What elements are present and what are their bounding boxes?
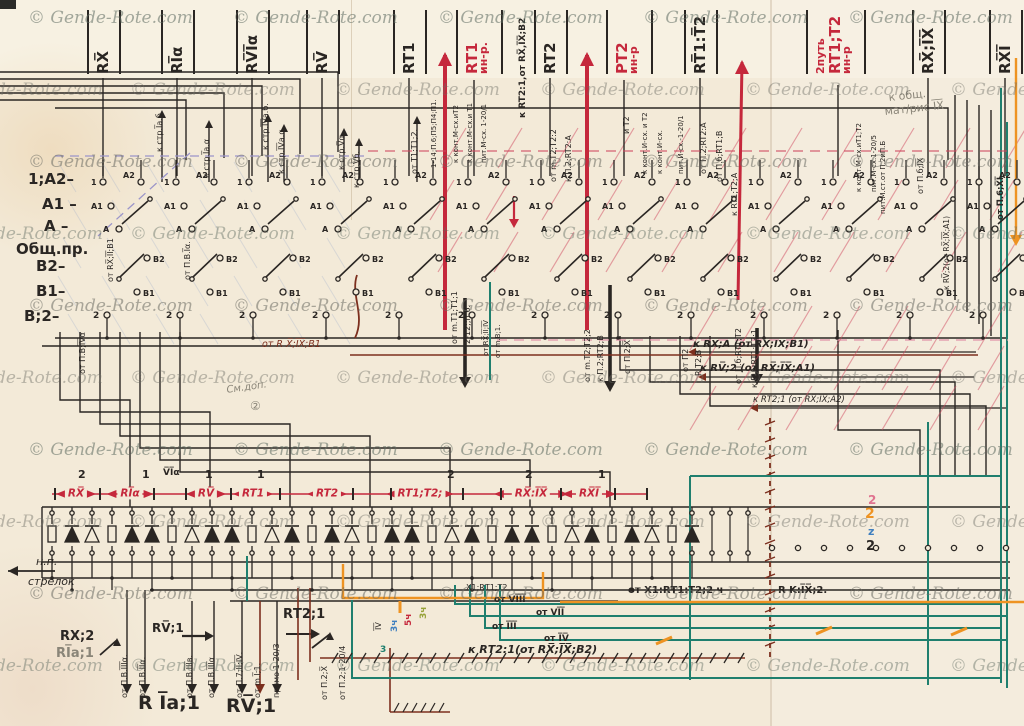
diode	[405, 507, 419, 578]
wire-it2: и Т2	[623, 116, 631, 134]
svg-text:A1: A1	[383, 202, 395, 211]
left-row-b1: B1–	[36, 284, 65, 299]
svg-text:2: 2	[896, 311, 902, 321]
wire-kp2rt2b: к П.2;RT2;B	[597, 335, 605, 382]
wire-otp2: от П2	[682, 349, 690, 372]
note-rv1-small: RV̅;1	[152, 622, 184, 634]
svg-text:A1: A1	[748, 202, 760, 211]
note-rv1: RV̅;1	[226, 697, 276, 716]
wire-otrx-b1: от RX̅;I̅I̅;B1	[107, 238, 115, 282]
rail-number: V̅I̅α	[163, 468, 180, 478]
num-3-teal: 3	[380, 646, 386, 655]
diode	[685, 507, 699, 578]
svg-text:B2: B2	[445, 255, 457, 264]
strip-tick	[806, 10, 808, 74]
svg-text:1: 1	[675, 178, 681, 187]
rail-label: RT2	[313, 487, 341, 499]
num-3ch-green: 3ч	[420, 607, 429, 619]
left-row-obsh: Общ.пр.	[16, 242, 88, 257]
resistor	[368, 507, 376, 578]
note-rx2: RX;2	[60, 630, 94, 643]
strip-tick	[338, 10, 340, 74]
wire-pit-i: пит.И-сх.-1-20/1	[678, 115, 685, 174]
svg-text:B2: B2	[299, 255, 311, 264]
strip-tick	[193, 10, 195, 74]
svg-text:B1: B1	[800, 289, 812, 298]
rail-number: 1	[257, 468, 265, 481]
svg-text:2: 2	[823, 311, 829, 321]
rail-tick	[185, 488, 187, 500]
wire-pit-mst: пит.М.ст.от П.2иП.Б	[880, 141, 887, 214]
diode	[565, 507, 579, 578]
svg-text:B1: B1	[143, 289, 155, 298]
top-relay-label-strip-rt1: RT1	[402, 42, 417, 74]
top-relay-label-strip-pt2-inr: ин-р	[628, 46, 639, 74]
note-np: н.п.	[36, 556, 57, 567]
top-relay-label-strip-2put: ин-р	[841, 46, 852, 74]
svg-text:2: 2	[969, 311, 975, 321]
svg-text:2: 2	[166, 311, 172, 321]
wire-kont-m-t1t2: к конт.М-сх.иТ1;Т2	[856, 123, 863, 192]
rail-label: RT1;T2;	[395, 487, 446, 499]
wire-krt1t2a: к RT1;Т2;A	[731, 173, 739, 216]
strip-tick	[716, 10, 718, 74]
svg-text:2: 2	[531, 311, 537, 321]
rail-number: 1	[598, 468, 606, 481]
svg-text:A1: A1	[310, 202, 322, 211]
bot-otp2x: от П.2;X̅	[321, 666, 329, 700]
wire-kont-i: к конт.И-сх.	[657, 130, 664, 174]
bus-ot4: от I̅V̅	[544, 635, 569, 644]
strip-tick	[534, 10, 536, 74]
num-5ch-red: 5ч	[405, 614, 414, 626]
wire-kont-m-t1: к конт.М-сх.и Т1	[467, 103, 474, 163]
rail-number: 2	[447, 468, 455, 481]
svg-text:A: A	[103, 225, 110, 234]
rail-tick	[614, 488, 616, 500]
svg-text:A: A	[687, 225, 694, 234]
rail-number: 1	[205, 468, 213, 481]
strip-tick	[425, 10, 427, 74]
svg-text:A: A	[395, 225, 402, 234]
svg-text:A1: A1	[529, 202, 541, 211]
top-relay-label-strip-rt1t2: RT̅1:T̅2	[693, 16, 708, 74]
svg-text:B1: B1	[508, 289, 520, 298]
wire-pit-m5: пит.М-сх.1-20/5	[871, 135, 878, 192]
diode	[325, 507, 339, 578]
rail-tick	[99, 488, 101, 500]
strip-tick	[119, 10, 121, 74]
svg-text:A1: A1	[237, 202, 249, 211]
strip-tick	[1021, 10, 1023, 74]
svg-text:A: A	[906, 225, 913, 234]
note-x1rt1: X1;RТ1;Т2	[466, 584, 507, 592]
svg-text:A: A	[614, 225, 621, 234]
wire-otpb-rt1t2: от П.б;RT1;Т2	[735, 328, 743, 384]
svg-text:2: 2	[385, 311, 391, 321]
svg-text:B1: B1	[362, 289, 374, 298]
resistor	[168, 507, 176, 578]
wire-otpb-ix: от П.б;I̅X̅	[917, 158, 925, 194]
svg-text:A1: A1	[821, 202, 833, 211]
svg-text:B2: B2	[883, 255, 895, 264]
rail-label: RX̅	[65, 487, 87, 499]
rail-tick	[230, 488, 232, 500]
svg-text:2: 2	[239, 311, 245, 321]
svg-text:1: 1	[967, 178, 973, 187]
diode	[445, 507, 459, 578]
diode	[525, 507, 539, 578]
wire-otmt1: от m.Т1;Т1;1	[451, 291, 459, 344]
wire-krt21: к RT2:1,от RX̅,I̅X̅;B2	[519, 18, 528, 118]
svg-text:1: 1	[529, 178, 535, 187]
strip-tick	[236, 10, 238, 74]
svg-text:B2: B2	[226, 255, 238, 264]
rail-tick	[352, 488, 354, 500]
svg-text:A1: A1	[675, 202, 687, 211]
bot-otp2-1204: от П.2;1-20/4	[339, 646, 347, 700]
svg-text:A: A	[833, 225, 840, 234]
left-row-1a2: 1;A2–	[28, 172, 74, 187]
svg-text:1: 1	[602, 178, 608, 187]
svg-text:2: 2	[677, 311, 683, 321]
svg-text:A1: A1	[456, 202, 468, 211]
top-relay-label-strip-rt1-inr: ин-р.	[478, 42, 489, 74]
svg-text:A1: A1	[894, 202, 906, 211]
contact-group: 1A2A1AB2B12	[602, 160, 676, 338]
svg-text:B2: B2	[810, 255, 822, 264]
note-sm2: ②	[250, 400, 261, 412]
strip-tick	[161, 10, 163, 74]
strip-tick	[566, 10, 568, 74]
svg-text:1: 1	[456, 178, 462, 187]
strip-tick	[684, 10, 686, 74]
top-relay-label-strip-rt2: RT2	[543, 42, 558, 74]
bot-otpv3a-1: от П.В.I̅I̅I̅α.	[121, 654, 129, 698]
rail-tick	[279, 488, 281, 500]
svg-text:A: A	[322, 225, 329, 234]
bot-pryamo: прямо 1-20/3	[273, 643, 281, 698]
svg-text:B2: B2	[518, 255, 530, 264]
svg-text:A: A	[760, 225, 767, 234]
bus-ot7: от VI̅I̅	[536, 609, 564, 618]
svg-text:B1: B1	[654, 289, 666, 298]
contact-group: 1A2A1AB2B12	[91, 160, 165, 338]
resistor	[608, 507, 616, 578]
wire-212: 2-12;;п.6.	[464, 305, 472, 344]
left-row-b2b: B;2–	[24, 309, 59, 324]
num-2-pink: 2	[868, 494, 876, 506]
svg-text:B1: B1	[873, 289, 885, 298]
strip-tick	[864, 10, 866, 74]
contact-group: 1A2A1AB2B12	[529, 160, 603, 338]
wire-kont-m-t2: к конт.М-сх.иТ2	[453, 105, 460, 163]
svg-text:B2: B2	[591, 255, 603, 264]
line-krv2: к RV̅;2 (от RX̅;I̅X̅;A1)	[700, 364, 815, 374]
rail-label: RI̅α	[117, 487, 142, 499]
svg-text:B1: B1	[1019, 289, 1024, 298]
svg-text:B1: B1	[946, 289, 958, 298]
wire-otp6-xi: от П.6;X̅I̅	[997, 177, 1006, 220]
svg-text:1: 1	[310, 178, 316, 187]
diode	[205, 507, 219, 578]
svg-text:B2: B2	[737, 255, 749, 264]
svg-text:A1: A1	[967, 202, 979, 211]
strip-tick	[268, 10, 270, 74]
top-relay-label-strip-rxix: RX̅;I̅X̅	[921, 28, 936, 74]
top-relay-label-strip-2put: 2путь	[815, 38, 826, 74]
num-4v: I̅V̅	[375, 622, 383, 630]
wire-pit-m: пит.М-сх. 1-20/1	[481, 104, 488, 163]
left-row-a1: A1 –	[42, 197, 77, 212]
svg-text:B2: B2	[956, 255, 968, 264]
rail-number: 2	[78, 468, 86, 481]
wiring-layer: 1A2A1AB2B121A2A1AB2B121A2A1AB2B121A2A1AB…	[0, 0, 1024, 726]
svg-text:A: A	[176, 225, 183, 234]
num-2-orange: 2	[865, 507, 875, 521]
svg-text:B2: B2	[664, 255, 676, 264]
bus-ot8: от VI̅I̅I̅	[494, 596, 526, 605]
num-2-blue: z	[868, 526, 874, 537]
wire-ot-mt2: от m.Т2;Т2:2	[550, 129, 558, 182]
strip-tick	[501, 10, 503, 74]
bot-otpv3a-2: от П.В.I̅I̅I̅α	[208, 657, 216, 698]
rail-tick	[500, 488, 502, 500]
wire-otpv-1a: от П.В.I̅α.	[184, 241, 192, 280]
strip-tick	[87, 10, 89, 74]
note-rt21: RТ2;1	[283, 608, 325, 621]
wire-k-str-va: к стр.V̅α.	[338, 133, 346, 170]
rail-tick	[390, 488, 392, 500]
strip-tick	[651, 10, 653, 74]
line-rkix2: R K:I̅X̅;2.	[778, 586, 827, 596]
scanned-schematic: 1A2A1AB2B121A2A1AB2B121A2A1AB2B121A2A1AB…	[0, 0, 1024, 726]
svg-text:B1: B1	[216, 289, 228, 298]
bus-ot3: от I̅I̅I̅	[492, 623, 517, 632]
strip-tick	[306, 10, 308, 74]
svg-text:A: A	[541, 225, 548, 234]
wire-kont-i-t2: к конт.И-сх. и Т2	[642, 112, 649, 174]
rail-number: 1	[142, 468, 150, 481]
num-3ch-blue: 3ч	[391, 620, 400, 632]
wire-114: 1-14;П.6;П5;П4;П1.	[431, 99, 438, 168]
svg-text:B2: B2	[153, 255, 165, 264]
svg-text:1: 1	[748, 178, 754, 187]
wire-otp2x: от П.2;X̅	[624, 340, 632, 374]
wire-k-str-1a-a: к стр.I̅a.α	[203, 139, 211, 178]
line-krt21b2: к RТ2:1(от RX̅;I̅X̅;B2)	[468, 644, 597, 655]
wire-kp2-rt2a: к П.2;RT2:A	[565, 135, 573, 182]
diode	[285, 507, 299, 578]
wire-ot-mt22: от m.Т2;Т2;2	[584, 329, 592, 382]
resistor	[488, 507, 496, 578]
top-relay-label-strip-rv: RV̅	[315, 51, 330, 74]
line-krt21a2: к RТ2;1 (от RX̅;I̅X̅;A2)	[753, 396, 845, 405]
left-row-a: A –	[44, 219, 68, 234]
line-otrxb1: от R X̅;I̅X̅;B1	[262, 340, 321, 350]
strip-tick	[393, 10, 395, 74]
strip-tick	[944, 10, 946, 74]
wire-otrx24: от RX̅;I̅I̅;I̅V̅	[483, 320, 490, 356]
svg-text:1: 1	[821, 178, 827, 187]
wire-krv2: к RV̅;2(от RX̅;I̅X̅;A1)	[943, 216, 951, 290]
svg-text:A2: A2	[780, 171, 792, 180]
rail-label: RX̅I̅	[576, 487, 602, 499]
contact-group: 1A2A1AB2B12	[310, 160, 384, 338]
diode	[85, 507, 99, 578]
top-relay-label-strip-rvia: RV̅I̅α	[245, 35, 260, 74]
strip-tick	[989, 10, 991, 74]
wire-otpv-4a: от П.В;I̅V̅α	[79, 332, 87, 374]
svg-text:A1: A1	[91, 202, 103, 211]
strip-tick	[606, 10, 608, 74]
top-relay-label-strip-rxi: RX̅I̅	[998, 45, 1013, 74]
wire-k-str-4a-b: к стр.I̅V̅a.б.	[262, 103, 270, 150]
contact-group: 1A2A1AB2B12	[237, 160, 311, 338]
svg-text:B2: B2	[372, 255, 384, 264]
svg-text:1: 1	[164, 178, 170, 187]
svg-text:B1: B1	[435, 289, 447, 298]
rail-number: 2	[525, 468, 533, 481]
wire-k-str-1a-b: к стр.I̅a.б.	[156, 111, 164, 152]
diode	[645, 507, 659, 578]
svg-text:2: 2	[312, 311, 318, 321]
rail-tick	[646, 488, 648, 500]
line-krxa: к RX̅;A (от RX̅;I̅X̅;B1)	[693, 340, 809, 350]
wire-otmv1: от m.В;1.	[495, 325, 502, 358]
svg-text:1: 1	[237, 178, 243, 187]
bot-otp7: от П.7;I̅I̅;I̅V̅.	[236, 652, 244, 698]
svg-text:B1: B1	[581, 289, 593, 298]
contact-group: 1A2A1AB2B12	[164, 160, 238, 338]
note-r1a1: R I̅a;1	[138, 694, 200, 713]
svg-text:A: A	[979, 225, 986, 234]
svg-text:A2: A2	[488, 171, 500, 180]
svg-text:B1: B1	[727, 289, 739, 298]
svg-text:2: 2	[750, 311, 756, 321]
contact-group: 1A2A1AB2B12	[748, 160, 822, 338]
rail-label: RT1	[239, 487, 267, 499]
note-strelok: стрелок	[28, 576, 75, 587]
wire-k-str-vb: к стр.V̅б.	[353, 151, 361, 188]
num-2-ink: 2	[866, 540, 875, 553]
rail-tick	[560, 488, 562, 500]
rail-label: RV̅	[195, 487, 217, 499]
wire-ot-t1: от Т1;Т1;2.	[411, 129, 419, 174]
note-r1a1-small: RI̅a;1	[56, 647, 94, 660]
top-relay-label-strip-ria: RI̅α	[170, 47, 185, 74]
svg-text:A1: A1	[164, 202, 176, 211]
rail-label: RX̅:I̅X̅	[512, 487, 550, 499]
svg-text:2: 2	[93, 311, 99, 321]
rail-tick	[54, 488, 56, 500]
svg-text:1: 1	[383, 178, 389, 187]
bot-otm11: от m.I̅;1.	[254, 663, 262, 698]
wire-otp2-rt2a: от П.2;RT2:A	[700, 122, 708, 174]
left-row-b2: B2–	[36, 259, 65, 274]
line-otx1: от X1:RТ1:Т2;2 ч	[628, 586, 723, 596]
wire-otpb-rt1b: от П.б;RT1;B	[716, 131, 724, 182]
resistor	[248, 507, 256, 578]
diode	[125, 507, 139, 578]
wire-kpb-rt1t21: к П.б;RT1;Т2;1	[751, 329, 759, 388]
svg-text:1: 1	[91, 178, 97, 187]
rail-tick	[153, 488, 155, 500]
rail-tick	[462, 488, 464, 500]
svg-text:A2: A2	[926, 171, 938, 180]
strip-tick	[456, 10, 458, 74]
wire-k-str-4a-a: к стр.I̅V̅a.α.	[278, 127, 286, 174]
svg-text:A: A	[249, 225, 256, 234]
svg-text:A2: A2	[123, 171, 135, 180]
strip-tick	[912, 10, 914, 74]
svg-text:2: 2	[604, 311, 610, 321]
top-relay-label-strip-rx: RX̅	[96, 51, 111, 74]
svg-text:B1: B1	[289, 289, 301, 298]
svg-text:1: 1	[894, 178, 900, 187]
svg-text:A1: A1	[602, 202, 614, 211]
svg-text:A: A	[468, 225, 475, 234]
